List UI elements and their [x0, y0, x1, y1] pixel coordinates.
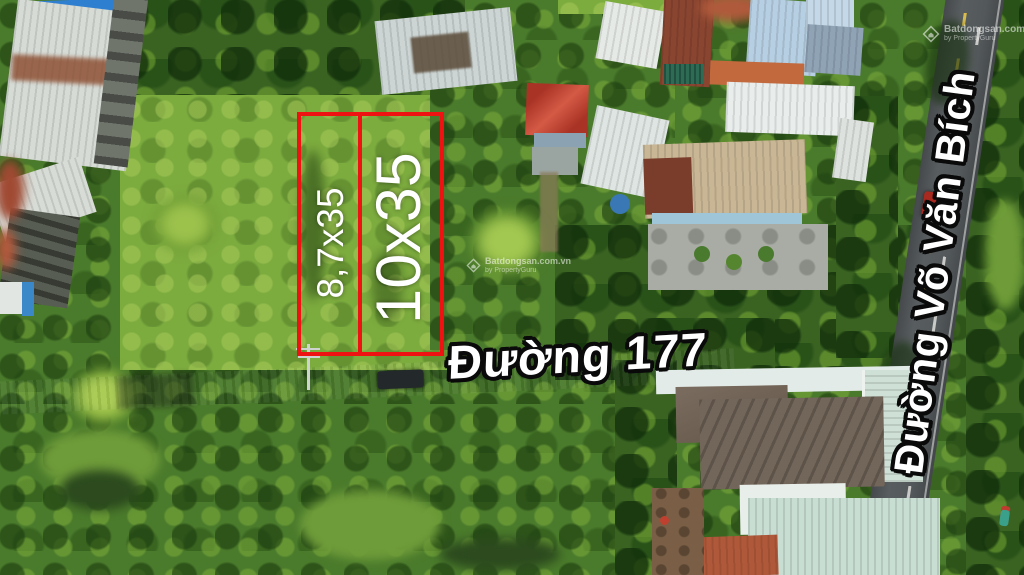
watermark-tagline: by PropertyGuru [485, 267, 571, 275]
dirt-path [540, 172, 558, 252]
watermark-top-right: Batdongsan.com.vn by PropertyGuru [922, 24, 1024, 43]
terracotta-tile-roof [697, 535, 778, 575]
watermark-brand: Batdongsan.com.vn [485, 256, 571, 267]
tan-ridged-roof-house [643, 139, 807, 219]
white-wall-fragment [0, 282, 24, 314]
concrete-yard [532, 147, 578, 175]
blue-wall-fragment [22, 282, 34, 316]
watermark-brand: Batdongsan.com.vn [944, 24, 1024, 35]
potted-plant [726, 254, 742, 270]
watermark-house-icon [922, 25, 940, 43]
dark-shade-patch [440, 538, 560, 570]
aerial-photo: 8,7x35 10x35 Đường 177 Đường Võ Văn Bích… [0, 0, 1024, 575]
palm-tree [150, 194, 220, 254]
watermark-center: Batdongsan.com.vn by PropertyGuru [466, 256, 571, 275]
house-front-wall [534, 133, 586, 148]
white-roof [595, 1, 666, 69]
plot-divider-line [358, 116, 362, 352]
brown-roof-section [643, 157, 693, 215]
utility-pole-crossarm [298, 356, 320, 358]
dirt-yard [652, 488, 704, 575]
dark-shade-patch [60, 470, 140, 510]
dark-roof-patch [410, 32, 471, 74]
potted-plant [694, 246, 710, 262]
watermark-tagline: by PropertyGuru [944, 35, 1024, 43]
long-pale-roof-building [375, 7, 518, 95]
watermark-house-icon [466, 258, 481, 273]
light-blue-wall [652, 213, 802, 224]
yard-clutter [660, 516, 669, 525]
light-grass-patch [300, 490, 440, 560]
red-hip-roof-house [525, 83, 589, 137]
grey-brown-hip-roof-main [699, 396, 885, 489]
light-tree-crown [985, 200, 1024, 310]
grey-blue-roof-panel [804, 24, 863, 76]
teal-shade-net [664, 64, 704, 84]
plot-label-left: 8,7x35 [310, 187, 352, 298]
plot-label-right: 10x35 [363, 152, 435, 324]
car-on-side-road [377, 369, 424, 389]
potted-plant [758, 246, 774, 262]
tree-shadow-on-road [117, 373, 193, 409]
rust-streak [11, 54, 116, 85]
large-white-roof [725, 82, 855, 136]
blue-water-tank [610, 194, 630, 214]
